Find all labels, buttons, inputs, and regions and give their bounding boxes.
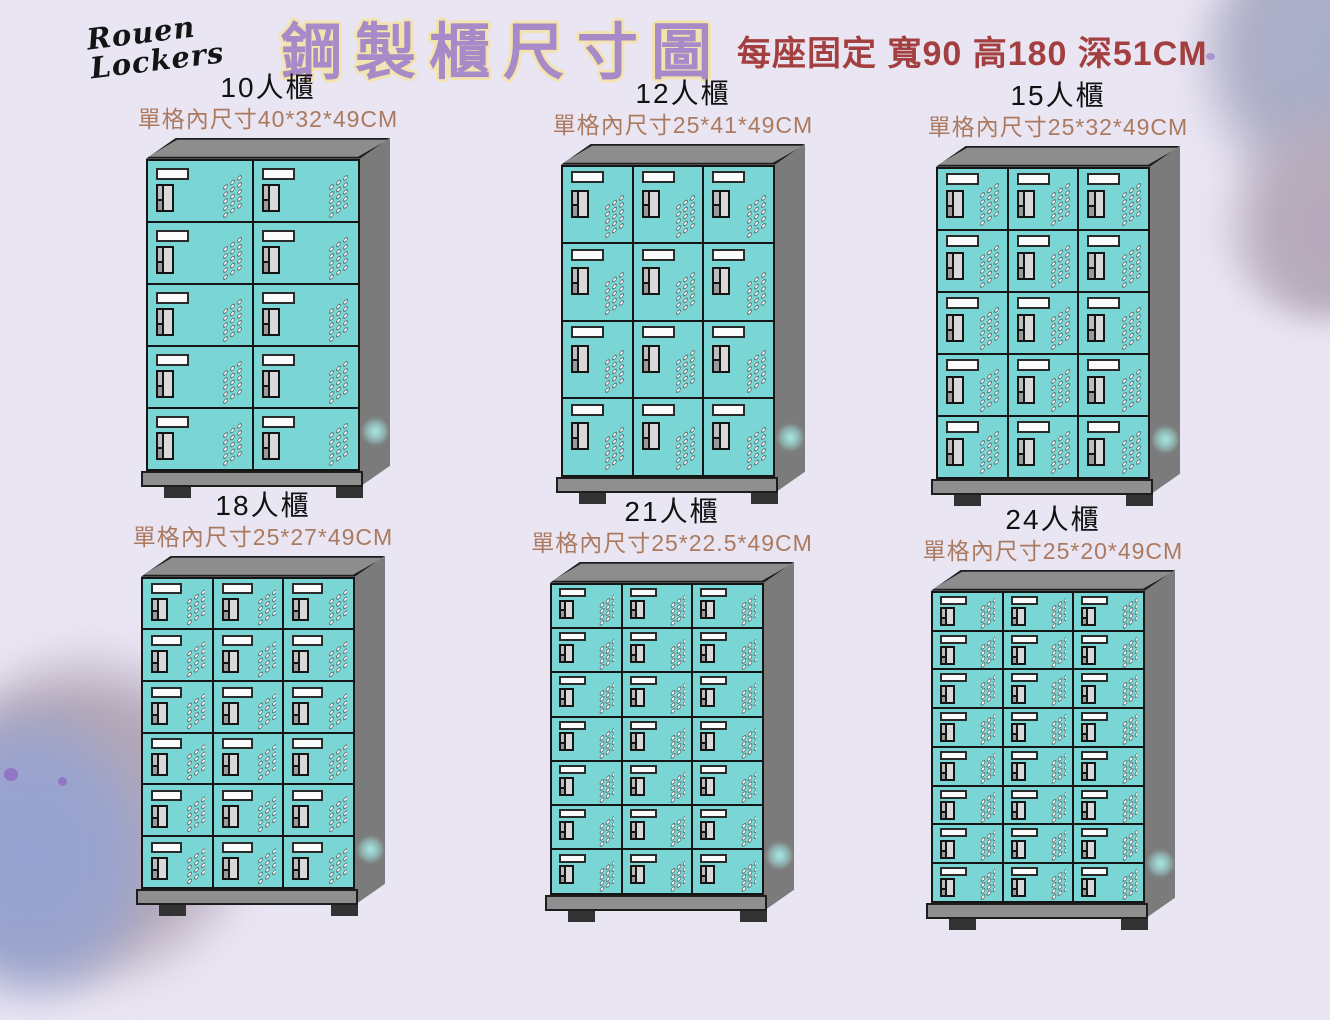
door-vent-icon: [257, 588, 276, 629]
door-nameplate: [1011, 751, 1038, 760]
door-vent-icon: [328, 847, 347, 888]
door-nameplate: [222, 687, 253, 698]
locker-door: [1004, 670, 1073, 707]
door-nameplate: [1081, 828, 1108, 837]
door-lock-icon: [1081, 607, 1096, 626]
door-nameplate: [559, 721, 586, 730]
door-nameplate: [940, 712, 967, 721]
door-lock-icon: [946, 438, 964, 466]
locker-door: [214, 630, 283, 680]
locker-door: [1009, 417, 1078, 477]
door-nameplate: [1087, 297, 1120, 309]
cabinet-foot-right: [1121, 919, 1148, 930]
door-nameplate: [940, 751, 967, 760]
locker-door: [143, 630, 212, 680]
door-lock-icon: [292, 857, 309, 880]
door-lock-icon: [1087, 252, 1105, 280]
lock-handle: [566, 690, 572, 705]
locker-inner-dims: 單格內尺寸25*32*49CM: [893, 114, 1223, 142]
door-lock-icon: [1081, 723, 1096, 742]
locker-door: [143, 785, 212, 835]
door-nameplate: [1081, 673, 1108, 682]
lock-handle: [300, 704, 307, 723]
lock-latch: [224, 704, 230, 723]
door-nameplate: [700, 854, 727, 863]
lock-latch: [714, 269, 720, 293]
door-vent-icon: [741, 815, 756, 849]
door-vent-icon: [186, 588, 205, 629]
door-lock-icon: [1081, 840, 1096, 859]
door-vent-icon: [1051, 752, 1066, 786]
cabinet-front-face: [146, 159, 360, 471]
locker-door: [933, 593, 1002, 630]
locker-cabinet-illustration: [141, 556, 385, 918]
lock-handle: [164, 310, 172, 334]
locker-door: [1004, 748, 1073, 785]
door-vent-icon: [979, 304, 1000, 354]
door-vent-icon: [257, 692, 276, 733]
cabinet-front-face: [561, 165, 775, 477]
lock-handle: [637, 867, 643, 882]
lock-latch: [158, 434, 164, 458]
door-nameplate: [156, 168, 189, 180]
lock-handle: [159, 807, 166, 826]
lock-handle: [707, 823, 713, 838]
locker-cabinet-illustration: [931, 570, 1175, 932]
lock-latch: [948, 316, 954, 340]
lock-handle: [164, 186, 172, 210]
door-nameplate: [292, 635, 323, 646]
lock-latch: [158, 372, 164, 396]
lock-latch: [264, 372, 270, 396]
door-nameplate: [946, 359, 979, 371]
door-lock-icon: [292, 753, 309, 776]
locker-door: [1009, 293, 1078, 353]
door-nameplate: [946, 297, 979, 309]
lock-handle: [270, 310, 278, 334]
door-nameplate: [630, 632, 657, 641]
door-vent-icon: [328, 420, 349, 470]
lock-handle: [947, 842, 953, 857]
door-nameplate: [571, 404, 604, 416]
locker-door: [1009, 231, 1078, 291]
door-nameplate: [292, 687, 323, 698]
locker-door: [284, 630, 353, 680]
door-vent-icon: [257, 743, 276, 784]
door-vent-icon: [257, 640, 276, 681]
door-nameplate: [700, 765, 727, 774]
door-lock-icon: [940, 685, 955, 704]
locker-door: [938, 231, 1007, 291]
lock-handle: [230, 600, 237, 619]
lock-handle: [954, 254, 962, 278]
lock-latch: [153, 600, 159, 619]
door-nameplate: [630, 676, 657, 685]
door-lock-icon: [712, 190, 730, 218]
door-vent-icon: [222, 420, 243, 470]
lock-latch: [561, 823, 566, 838]
locker-door: [933, 709, 1002, 746]
door-nameplate: [642, 171, 675, 183]
door-nameplate: [630, 765, 657, 774]
locker-figure: 10人櫃 單格內尺寸40*32*49CM: [103, 72, 433, 500]
lock-latch: [714, 424, 720, 448]
door-nameplate: [946, 173, 979, 185]
lock-latch: [561, 779, 566, 794]
locker-door: [623, 806, 692, 848]
lock-latch: [644, 424, 650, 448]
locker-door: [1004, 825, 1073, 862]
lock-latch: [1019, 440, 1025, 464]
door-lock-icon: [222, 702, 239, 725]
door-vent-icon: [599, 860, 614, 894]
door-nameplate: [571, 249, 604, 261]
lock-latch: [1013, 880, 1018, 895]
door-nameplate: [222, 635, 253, 646]
lock-latch: [702, 867, 707, 882]
cabinet-base: [931, 479, 1153, 495]
locker-cabinet-illustration: [550, 562, 794, 924]
lock-handle: [566, 779, 572, 794]
door-vent-icon: [1050, 180, 1071, 230]
door-lock-icon: [262, 184, 280, 212]
door-lock-icon: [156, 432, 174, 460]
door-lock-icon: [642, 345, 660, 373]
door-vent-icon: [328, 640, 347, 681]
door-nameplate: [946, 421, 979, 433]
lock-latch: [632, 690, 637, 705]
lock-handle: [637, 690, 643, 705]
locker-door: [634, 167, 703, 243]
door-lock-icon: [712, 267, 730, 295]
locker-door: [148, 285, 252, 345]
locker-door: [1074, 632, 1143, 669]
door-nameplate: [262, 416, 295, 428]
door-vent-icon: [675, 424, 696, 474]
door-lock-icon: [151, 753, 168, 776]
lock-handle: [159, 652, 166, 671]
lock-latch: [1013, 648, 1018, 663]
lock-latch: [644, 347, 650, 371]
cabinet-foot-right: [331, 905, 358, 916]
lock-handle: [1025, 192, 1033, 216]
lock-handle: [954, 316, 962, 340]
lock-latch: [632, 646, 637, 661]
door-nameplate: [642, 326, 675, 338]
door-nameplate: [1011, 828, 1038, 837]
lock-handle: [270, 248, 278, 272]
door-nameplate: [1081, 790, 1108, 799]
door-lock-icon: [262, 246, 280, 274]
watercolor-dot: [4, 768, 18, 781]
lock-handle: [947, 725, 953, 740]
locker-door: [933, 670, 1002, 707]
lock-handle: [300, 807, 307, 826]
lock-latch: [264, 434, 270, 458]
door-vent-icon: [1121, 304, 1142, 354]
door-lock-icon: [559, 644, 574, 663]
locker-door: [704, 167, 773, 243]
lock-handle: [1096, 378, 1104, 402]
lock-latch: [1089, 254, 1095, 278]
lock-latch: [632, 867, 637, 882]
lock-latch: [1083, 648, 1088, 663]
door-nameplate: [1017, 173, 1050, 185]
door-lock-icon: [630, 865, 645, 884]
door-lock-icon: [151, 598, 168, 621]
door-vent-icon: [675, 347, 696, 397]
door-lock-icon: [946, 190, 964, 218]
door-lock-icon: [292, 650, 309, 673]
lock-handle: [637, 734, 643, 749]
door-lock-icon: [559, 732, 574, 751]
door-lock-icon: [1011, 607, 1026, 626]
locker-inner-dims: 單格內尺寸25*22.5*49CM: [507, 530, 837, 558]
cabinet-foot-left: [568, 911, 595, 922]
lock-latch: [1083, 687, 1088, 702]
locker-door: [623, 585, 692, 627]
locker-door: [563, 167, 632, 243]
lock-latch: [1083, 609, 1088, 624]
lock-handle: [579, 347, 587, 371]
door-lock-icon: [156, 370, 174, 398]
door-nameplate: [222, 842, 253, 853]
cabinet-top-face: [146, 138, 390, 159]
door-nameplate: [630, 588, 657, 597]
lock-handle: [566, 734, 572, 749]
locker-door: [284, 734, 353, 784]
locker-door: [1004, 864, 1073, 901]
locker-door: [693, 585, 762, 627]
lock-handle: [1018, 687, 1024, 702]
locker-door: [214, 579, 283, 629]
lock-handle: [300, 859, 307, 878]
lock-handle: [579, 192, 587, 216]
locker-door: [1004, 787, 1073, 824]
door-nameplate: [1011, 790, 1038, 799]
door-grid: [563, 167, 773, 475]
door-lock-icon: [571, 422, 589, 450]
lock-handle: [270, 372, 278, 396]
lock-handle: [300, 600, 307, 619]
door-vent-icon: [328, 588, 347, 629]
lock-latch: [294, 652, 300, 671]
lock-latch: [714, 347, 720, 371]
door-vent-icon: [599, 638, 614, 672]
door-lock-icon: [222, 753, 239, 776]
door-lock-icon: [630, 688, 645, 707]
door-vent-icon: [1051, 597, 1066, 631]
door-nameplate: [712, 249, 745, 261]
door-lock-icon: [940, 607, 955, 626]
locker-door: [933, 632, 1002, 669]
lock-latch: [632, 734, 637, 749]
locker-door: [1009, 169, 1078, 229]
lock-latch: [158, 186, 164, 210]
door-lock-icon: [571, 190, 589, 218]
lock-handle: [707, 602, 713, 617]
door-vent-icon: [670, 683, 685, 717]
door-vent-icon: [222, 234, 243, 284]
lock-latch: [264, 248, 270, 272]
lock-handle: [650, 192, 658, 216]
lock-handle: [1096, 440, 1104, 464]
locker-door: [693, 673, 762, 715]
locker-door: [254, 223, 358, 283]
door-nameplate: [222, 790, 253, 801]
door-lock-icon: [151, 857, 168, 880]
lock-handle: [1025, 378, 1033, 402]
locker-door: [933, 864, 1002, 901]
door-nameplate: [700, 588, 727, 597]
door-nameplate: [1011, 635, 1038, 644]
door-nameplate: [1011, 712, 1038, 721]
door-vent-icon: [1121, 366, 1142, 416]
locker-door: [1079, 169, 1148, 229]
door-nameplate: [940, 867, 967, 876]
locker-door: [1079, 417, 1148, 477]
locker-door: [1009, 355, 1078, 415]
lock-handle: [1088, 687, 1094, 702]
door-vent-icon: [328, 743, 347, 784]
locker-door: [693, 850, 762, 892]
door-vent-icon: [328, 234, 349, 284]
door-grid: [933, 593, 1143, 901]
door-nameplate: [571, 326, 604, 338]
cabinet-front-face: [936, 167, 1150, 479]
brand-stamp-icon: [1147, 850, 1174, 877]
door-lock-icon: [1087, 376, 1105, 404]
locker-door: [1074, 670, 1143, 707]
lock-latch: [1089, 192, 1095, 216]
door-nameplate: [151, 687, 182, 698]
locker-door: [552, 718, 621, 760]
locker-door: [623, 629, 692, 671]
cabinet-top-face: [550, 562, 794, 583]
lock-handle: [947, 880, 953, 895]
door-lock-icon: [571, 267, 589, 295]
lock-latch: [158, 310, 164, 334]
lock-handle: [954, 440, 962, 464]
door-vent-icon: [1050, 428, 1071, 478]
door-lock-icon: [1017, 314, 1035, 342]
locker-title: 21人櫃: [507, 496, 837, 528]
lock-handle: [947, 648, 953, 663]
lock-latch: [1013, 687, 1018, 702]
door-nameplate: [262, 230, 295, 242]
lock-latch: [561, 867, 566, 882]
lock-latch: [942, 725, 947, 740]
door-vent-icon: [328, 172, 349, 222]
door-nameplate: [700, 721, 727, 730]
door-nameplate: [292, 842, 323, 853]
lock-handle: [707, 867, 713, 882]
door-vent-icon: [257, 795, 276, 836]
door-vent-icon: [675, 192, 696, 242]
lock-handle: [579, 269, 587, 293]
lock-handle: [159, 755, 166, 774]
door-vent-icon: [980, 713, 995, 747]
locker-door: [938, 417, 1007, 477]
door-nameplate: [262, 354, 295, 366]
lock-latch: [224, 652, 230, 671]
door-nameplate: [630, 809, 657, 818]
locker-door: [143, 837, 212, 887]
door-lock-icon: [222, 650, 239, 673]
locker-door: [1079, 293, 1148, 353]
door-lock-icon: [642, 422, 660, 450]
locker-cabinet-illustration: [936, 146, 1180, 508]
cabinet-base: [545, 895, 767, 911]
door-vent-icon: [599, 771, 614, 805]
lock-latch: [158, 248, 164, 272]
locker-door: [1004, 593, 1073, 630]
door-lock-icon: [712, 422, 730, 450]
lock-handle: [230, 704, 237, 723]
lock-handle: [300, 755, 307, 774]
door-lock-icon: [700, 600, 715, 619]
lock-latch: [294, 755, 300, 774]
door-vent-icon: [741, 727, 756, 761]
lock-handle: [1096, 316, 1104, 340]
door-lock-icon: [946, 252, 964, 280]
lock-latch: [1083, 842, 1088, 857]
door-vent-icon: [980, 791, 995, 825]
door-nameplate: [156, 354, 189, 366]
door-lock-icon: [1011, 723, 1026, 742]
locker-door: [693, 718, 762, 760]
lock-latch: [224, 755, 230, 774]
door-lock-icon: [1087, 438, 1105, 466]
lock-latch: [948, 192, 954, 216]
door-vent-icon: [186, 692, 205, 733]
door-lock-icon: [700, 865, 715, 884]
lock-latch: [1083, 880, 1088, 895]
locker-door: [254, 347, 358, 407]
door-nameplate: [262, 292, 295, 304]
locker-cabinet-illustration: [561, 144, 805, 506]
lock-handle: [637, 602, 643, 617]
locker-title: 24人櫃: [888, 504, 1218, 536]
lock-latch: [1089, 378, 1095, 402]
lock-latch: [948, 254, 954, 278]
door-nameplate: [940, 596, 967, 605]
door-vent-icon: [670, 860, 685, 894]
door-vent-icon: [980, 752, 995, 786]
door-lock-icon: [262, 370, 280, 398]
locker-title: 10人櫃: [103, 72, 433, 104]
lock-handle: [1088, 609, 1094, 624]
locker-door: [148, 161, 252, 221]
lock-handle: [1088, 648, 1094, 663]
lock-handle: [164, 248, 172, 272]
door-lock-icon: [630, 732, 645, 751]
locker-door: [1074, 709, 1143, 746]
door-nameplate: [1081, 596, 1108, 605]
door-lock-icon: [559, 777, 574, 796]
locker-figure: 15人櫃 單格內尺寸25*32*49CM: [893, 80, 1223, 508]
locker-door: [552, 585, 621, 627]
locker-figure: 12人櫃 單格內尺寸25*41*49CM: [518, 78, 848, 506]
door-nameplate: [1081, 712, 1108, 721]
lock-latch: [264, 186, 270, 210]
door-nameplate: [222, 583, 253, 594]
lock-handle: [1018, 609, 1024, 624]
door-nameplate: [292, 738, 323, 749]
door-vent-icon: [257, 847, 276, 888]
locker-door: [1074, 825, 1143, 862]
door-lock-icon: [292, 805, 309, 828]
